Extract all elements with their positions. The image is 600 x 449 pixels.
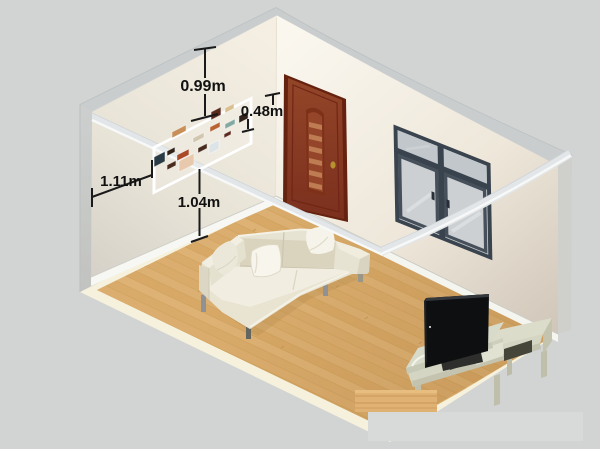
svg-text:1.11m: 1.11m	[100, 173, 142, 190]
svg-text:0.48m: 0.48m	[241, 103, 284, 120]
svg-text:1.04m: 1.04m	[178, 194, 221, 211]
svg-text:0.99m: 0.99m	[180, 78, 225, 95]
